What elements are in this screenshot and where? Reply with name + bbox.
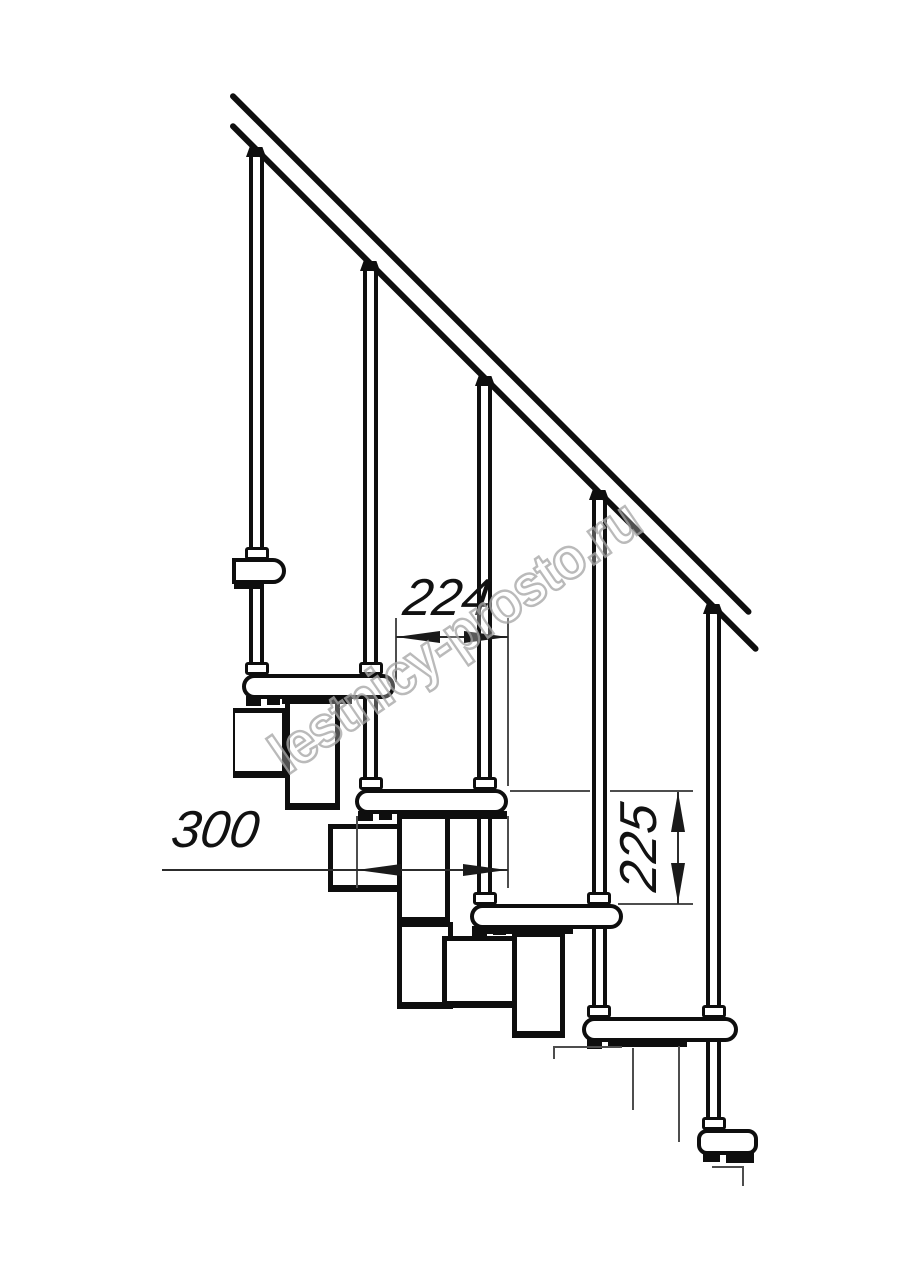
collar	[473, 777, 497, 790]
faded-line	[742, 1166, 744, 1186]
faded-line	[632, 1048, 634, 1110]
collar	[359, 777, 383, 790]
collar	[702, 1117, 726, 1130]
extension-line-225-top	[510, 790, 590, 792]
faded-line	[553, 1046, 555, 1059]
dimension-label-225: 225	[610, 783, 668, 911]
faded-line	[712, 1166, 744, 1168]
staircase-drawing: 224 300 225 lestnicy-prosto.ru	[0, 0, 914, 1280]
tread-3	[470, 904, 623, 929]
collar	[245, 662, 269, 675]
collar	[473, 892, 497, 905]
baluster-5	[706, 613, 721, 1132]
extension-line-300-right	[507, 816, 509, 888]
faded-line	[553, 1046, 622, 1048]
module-block-g	[512, 932, 565, 1038]
baluster-1	[249, 156, 264, 676]
tread-4	[582, 1017, 738, 1042]
collar	[587, 1005, 611, 1018]
collar	[702, 1005, 726, 1018]
upper-tread-partial	[232, 558, 286, 584]
arrowhead-left	[357, 864, 401, 876]
collar	[587, 892, 611, 905]
collar	[245, 547, 269, 560]
dimension-line-300	[162, 869, 508, 871]
base-foot-block	[697, 1129, 758, 1155]
arrowhead-right	[463, 864, 507, 876]
arrowhead-down	[671, 863, 685, 903]
watermark-text: lestnicy-prosto.ru	[201, 447, 708, 828]
extension-line-300-left	[356, 816, 358, 888]
module-block-f	[442, 936, 518, 1008]
module-block-c	[328, 824, 405, 892]
faded-line	[678, 1046, 680, 1142]
arrowhead-up	[671, 792, 685, 832]
tread-2	[355, 789, 508, 814]
